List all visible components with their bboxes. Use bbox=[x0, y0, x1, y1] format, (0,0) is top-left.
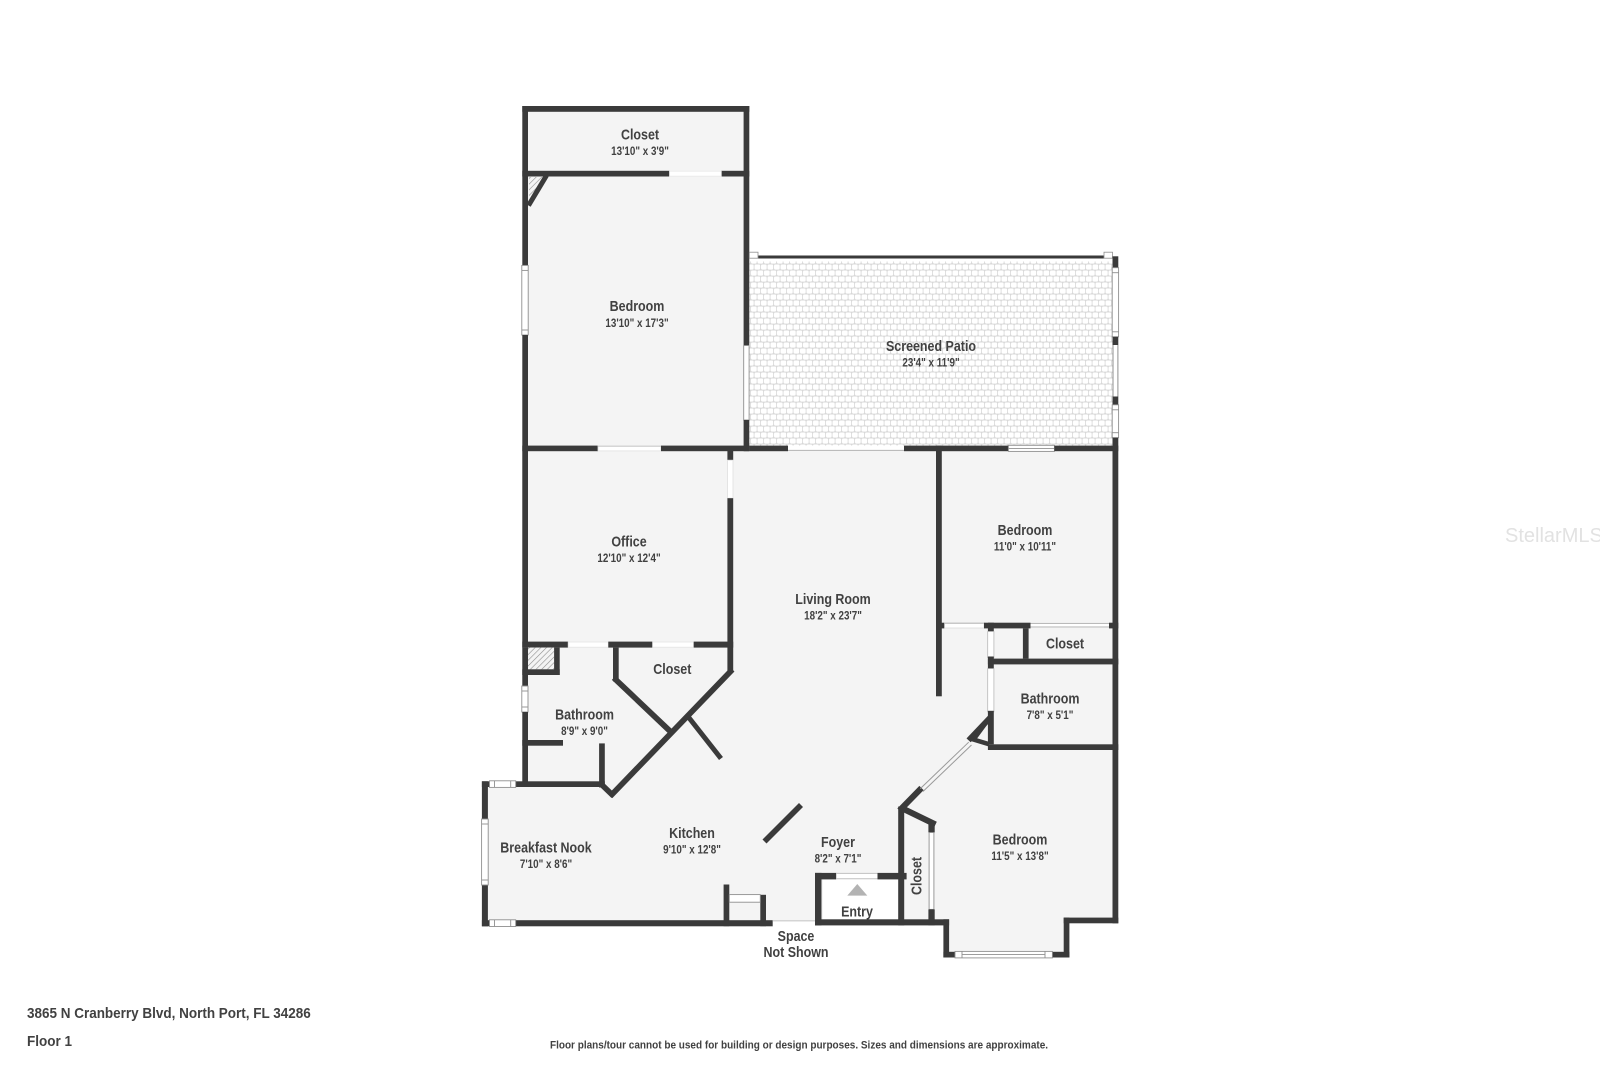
svg-text:7'10" x 8'6": 7'10" x 8'6" bbox=[520, 858, 572, 871]
svg-text:Space: Space bbox=[778, 928, 815, 944]
svg-text:Bathroom: Bathroom bbox=[1021, 691, 1080, 707]
svg-text:12'10" x 12'4": 12'10" x 12'4" bbox=[597, 552, 660, 565]
svg-text:Living Room: Living Room bbox=[795, 591, 870, 607]
svg-text:Breakfast Nook: Breakfast Nook bbox=[500, 840, 592, 856]
svg-text:Screened Patio: Screened Patio bbox=[886, 338, 976, 354]
svg-text:8'2" x 7'1": 8'2" x 7'1" bbox=[815, 853, 862, 866]
svg-text:Office: Office bbox=[611, 534, 647, 550]
svg-text:StellarMLS: StellarMLS bbox=[1505, 525, 1600, 547]
svg-text:Floor plans/tour cannot be use: Floor plans/tour cannot be used for buil… bbox=[550, 1039, 1048, 1052]
svg-text:3865 N Cranberry Blvd, North P: 3865 N Cranberry Blvd, North Port, FL 34… bbox=[27, 1005, 311, 1022]
svg-text:18'2" x 23'7": 18'2" x 23'7" bbox=[804, 610, 862, 623]
svg-text:Bathroom: Bathroom bbox=[555, 707, 614, 723]
svg-text:Foyer: Foyer bbox=[821, 834, 856, 850]
svg-text:9'10" x 12'8": 9'10" x 12'8" bbox=[663, 844, 721, 857]
svg-text:23'4" x 11'9": 23'4" x 11'9" bbox=[902, 357, 959, 370]
svg-text:Closet: Closet bbox=[653, 661, 692, 677]
svg-text:Bedroom: Bedroom bbox=[610, 298, 665, 314]
svg-text:11'0" x 10'11": 11'0" x 10'11" bbox=[994, 541, 1056, 554]
svg-text:Closet: Closet bbox=[621, 127, 660, 143]
svg-text:Closet: Closet bbox=[1046, 636, 1085, 652]
svg-text:Closet: Closet bbox=[909, 856, 925, 895]
svg-text:8'9" x 9'0": 8'9" x 9'0" bbox=[561, 725, 608, 738]
svg-text:Floor 1: Floor 1 bbox=[27, 1033, 72, 1050]
svg-text:11'5" x 13'8": 11'5" x 13'8" bbox=[991, 850, 1048, 863]
svg-text:13'10" x 17'3": 13'10" x 17'3" bbox=[605, 317, 668, 330]
svg-text:Not Shown: Not Shown bbox=[763, 944, 828, 960]
svg-text:7'8" x 5'1": 7'8" x 5'1" bbox=[1027, 709, 1074, 722]
svg-text:Bedroom: Bedroom bbox=[993, 832, 1048, 848]
svg-text:13'10" x 3'9": 13'10" x 3'9" bbox=[611, 145, 669, 158]
svg-text:Kitchen: Kitchen bbox=[669, 825, 715, 841]
svg-text:Bedroom: Bedroom bbox=[998, 522, 1053, 538]
svg-text:Entry: Entry bbox=[841, 904, 873, 920]
